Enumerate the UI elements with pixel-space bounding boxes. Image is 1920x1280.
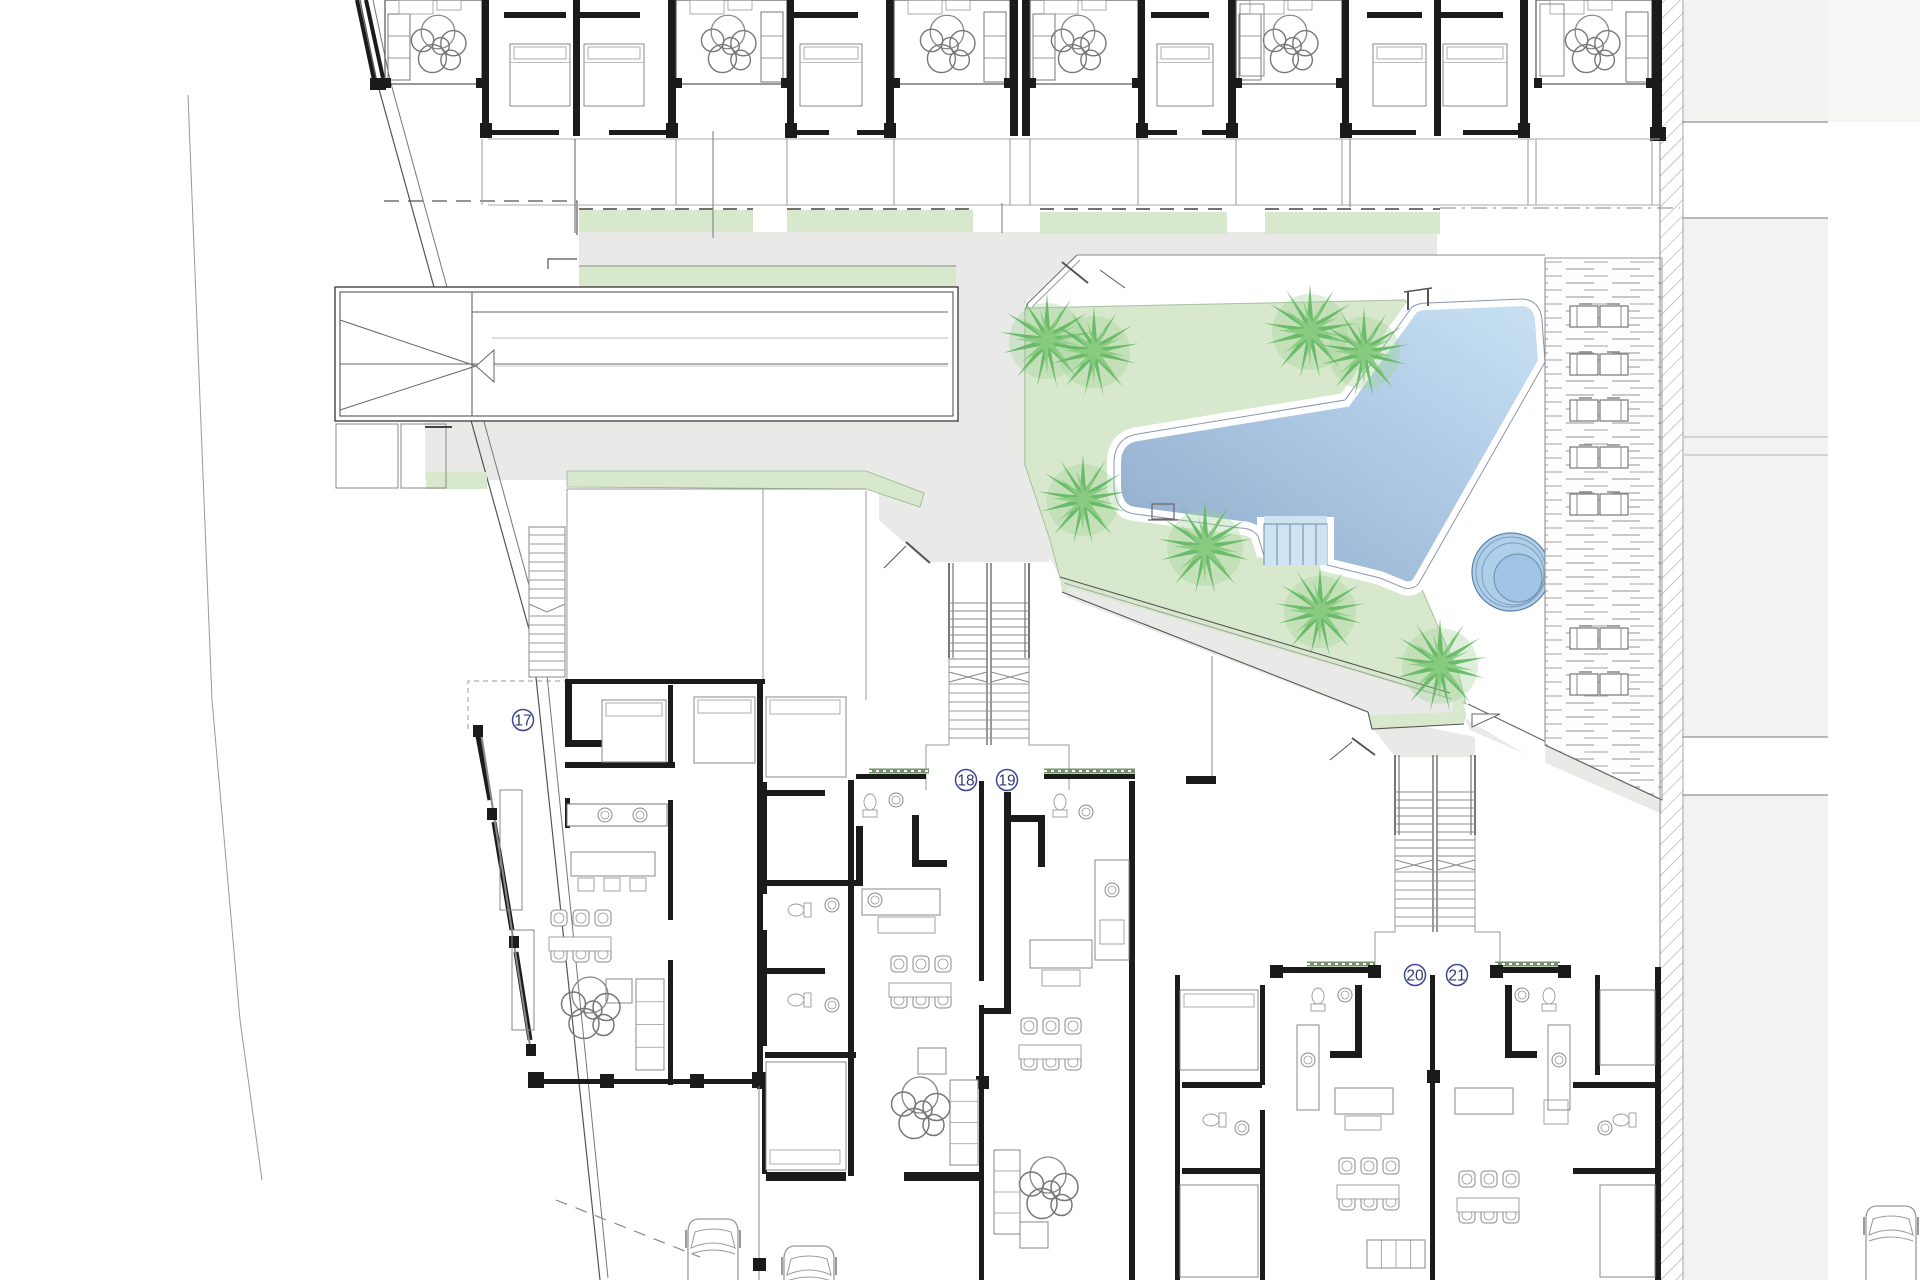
svg-text:21: 21 — [1448, 968, 1465, 985]
svg-text:18: 18 — [957, 773, 974, 790]
svg-text:17: 17 — [514, 713, 531, 730]
svg-text:19: 19 — [998, 773, 1015, 790]
svg-text:20: 20 — [1406, 968, 1424, 985]
